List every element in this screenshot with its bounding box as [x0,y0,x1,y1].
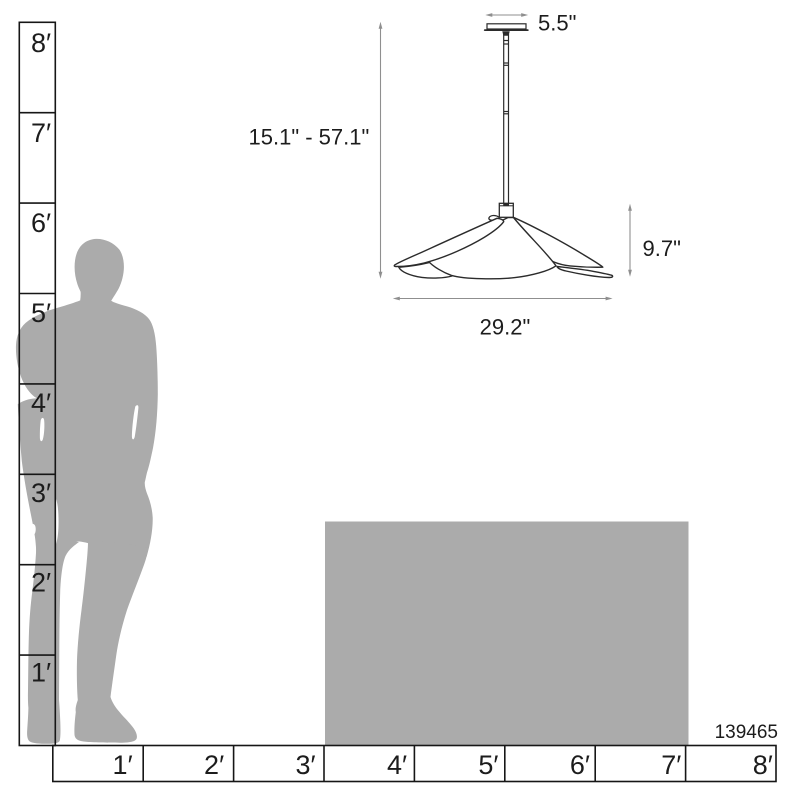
svg-text:139465: 139465 [715,722,778,743]
svg-text:4′: 4′ [31,388,51,418]
svg-text:8′: 8′ [753,750,773,780]
svg-text:29.2": 29.2" [480,314,531,339]
svg-text:5′: 5′ [478,750,498,780]
svg-text:5.5": 5.5" [538,11,576,36]
svg-text:3′: 3′ [295,750,315,780]
svg-text:9.7": 9.7" [643,236,681,261]
svg-text:7′: 7′ [31,118,51,148]
svg-text:8′: 8′ [31,28,51,58]
svg-text:4′: 4′ [387,750,407,780]
svg-text:7′: 7′ [661,750,681,780]
svg-text:2′: 2′ [31,568,51,598]
svg-text:6′: 6′ [31,208,51,238]
svg-text:6′: 6′ [570,750,590,780]
svg-text:3′: 3′ [31,478,51,508]
svg-text:1′: 1′ [31,658,51,688]
svg-text:2′: 2′ [204,750,224,780]
svg-text:15.1" - 57.1": 15.1" - 57.1" [249,125,370,150]
svg-text:1′: 1′ [113,750,133,780]
svg-text:5′: 5′ [31,298,51,328]
